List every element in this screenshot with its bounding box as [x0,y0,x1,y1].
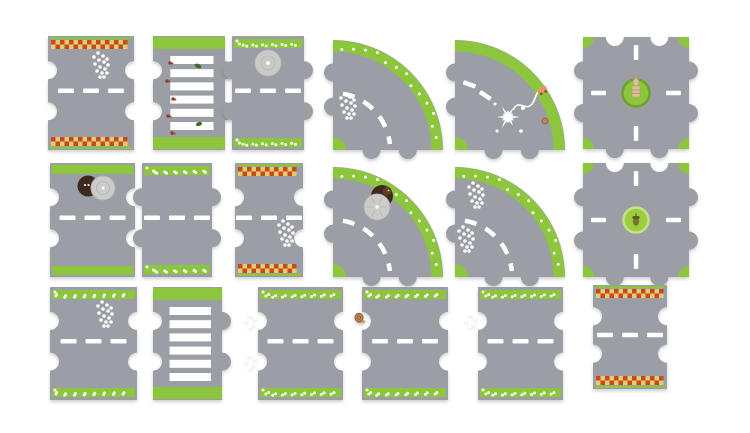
road-dash [169,216,185,221]
road-dash [236,216,252,221]
snail [355,313,366,323]
piece-outline [153,287,231,400]
piece-straight-finish-checker [32,20,150,166]
acorn-roundabout [624,208,649,233]
road-dash [422,339,438,344]
road-dash [647,333,663,338]
road-dash [397,339,413,344]
road-dash [85,216,101,221]
road-dash [86,339,102,344]
piece-crossroads-statue [567,21,705,165]
road-dash [60,216,76,221]
piece-straight-flower-cluster [34,271,153,416]
piece-straight-stone-well [216,20,320,166]
piece-straight-snail [346,271,464,416]
road-dash [372,339,388,344]
road-dash [144,216,160,221]
road-dash [108,89,124,94]
road-dash [194,216,210,221]
road-dash [110,216,126,221]
road-dash [622,333,638,338]
road-dash [513,339,529,344]
road-dash [293,339,309,344]
road-dash [58,89,74,94]
road-dash [83,89,99,94]
road-dash [235,89,251,94]
road-dash [488,339,504,344]
road-dash [111,339,127,344]
road-dash [61,339,77,344]
road-dash [318,339,334,344]
toy-road-puzzle-photo [0,0,750,433]
piece-straight-checker-2 [577,269,683,405]
tab-flowers [245,314,257,369]
piece-zebra-crossing [137,271,238,416]
road-dash [597,333,613,338]
road-dash [260,89,276,94]
road-dash [268,339,284,344]
road-dash [285,89,301,94]
piece-straight-flower-verge-2 [462,271,579,416]
road-dash [286,216,302,221]
road-dash [538,339,554,344]
piece-curve-paint-splat [439,20,581,166]
piece-curve-flower-verge [317,20,459,166]
piece-straight-tab-flowers [242,271,359,416]
stone-well [255,50,281,76]
tab-flowers [465,314,477,329]
road-dash [261,216,277,221]
